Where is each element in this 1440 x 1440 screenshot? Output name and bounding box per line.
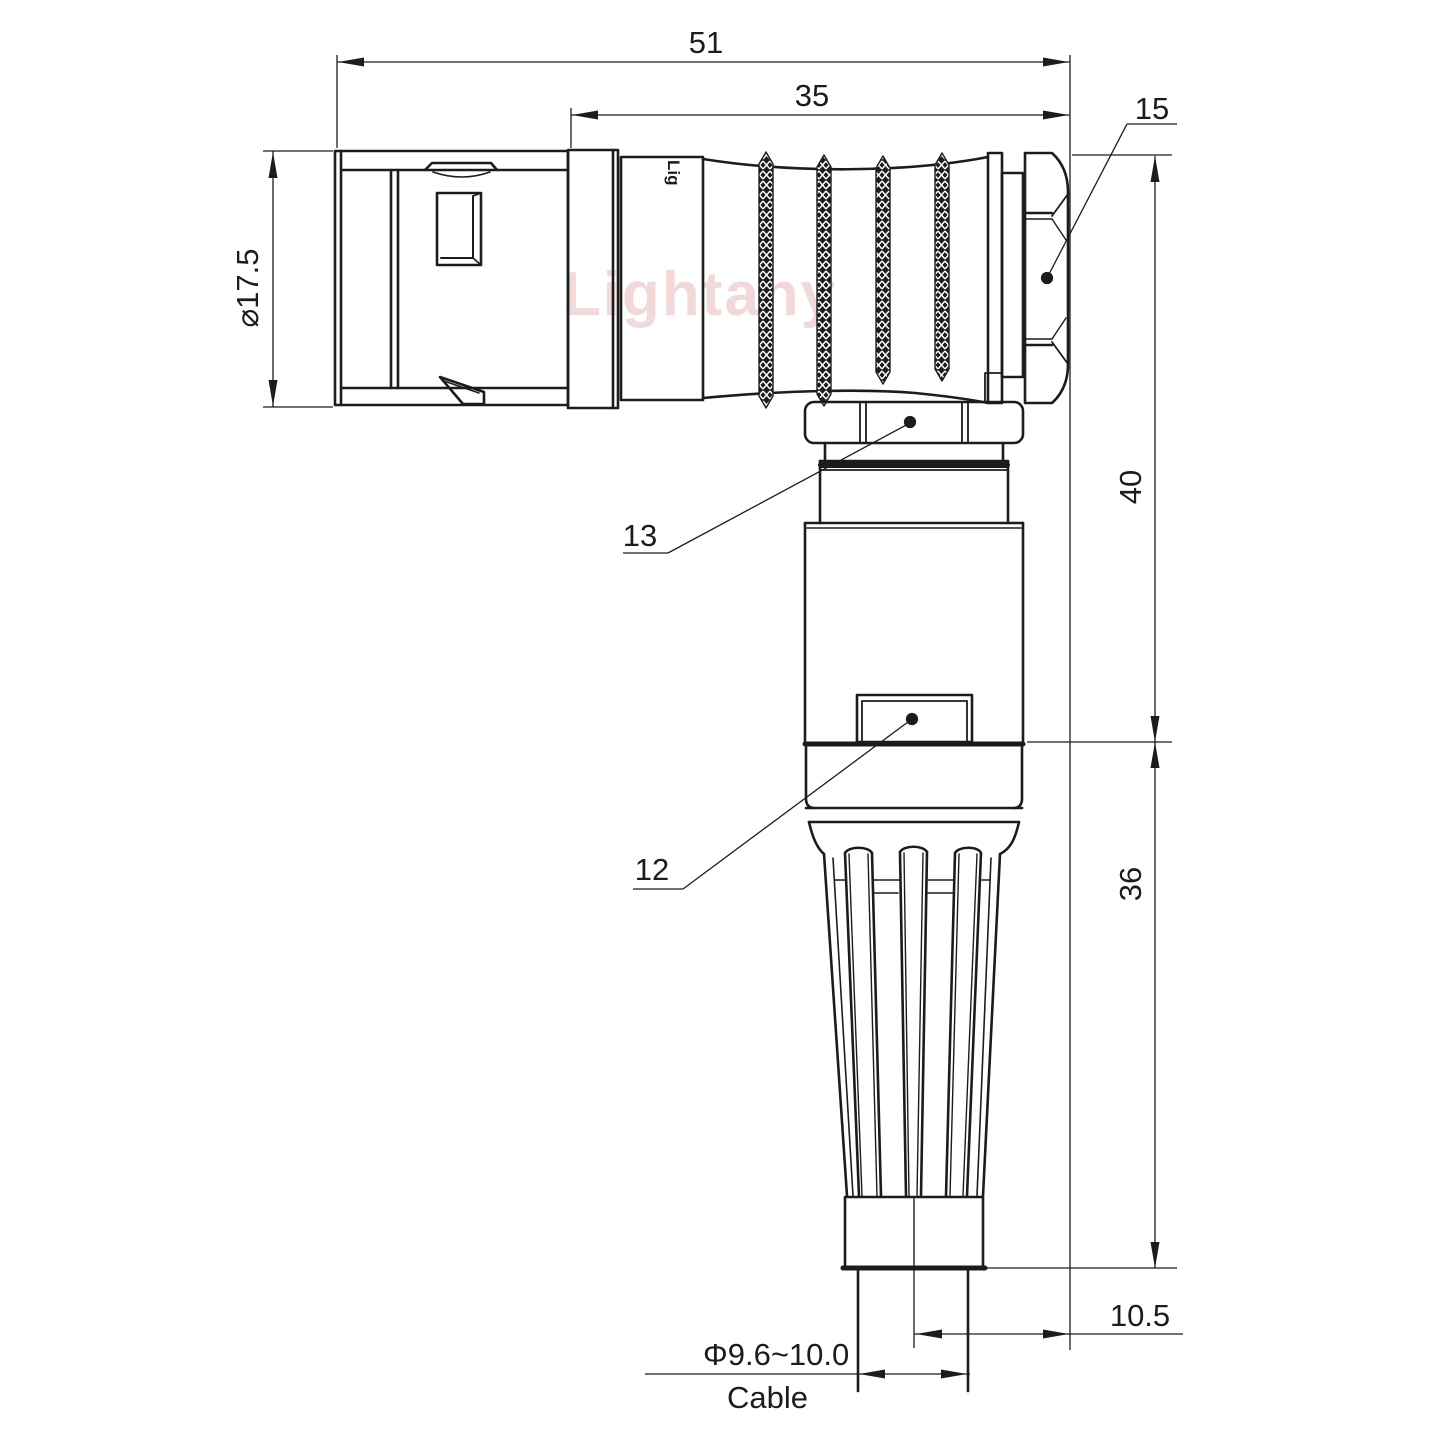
part-label-13: 13 [623, 518, 657, 553]
dim-text-15: 15 [1135, 91, 1169, 126]
dim-text-35: 35 [795, 78, 829, 113]
dim-text-10-5: 10.5 [1110, 1298, 1170, 1333]
dim-text-51: 51 [689, 25, 723, 60]
rear-collar [985, 153, 1023, 403]
connector-drawing: Lightany [0, 0, 1440, 1440]
strain-relief-boot [806, 747, 1022, 1196]
dim-text-40: 40 [1113, 470, 1148, 504]
label-cable: Cable [727, 1380, 808, 1415]
keying-window [437, 193, 481, 265]
dim-text-diameter: ⌀17.5 [230, 249, 265, 328]
leader-13 [623, 417, 916, 554]
neck-and-oring [820, 443, 1008, 523]
watermark-text: Lightany [563, 260, 837, 329]
latch-wedge [440, 377, 484, 404]
barrel-logo-marking: Lig [664, 160, 683, 186]
cable-ferrule [843, 1197, 985, 1268]
leader-12 [633, 714, 918, 890]
connector-body [805, 523, 1023, 744]
part-label-12: 12 [635, 852, 669, 887]
engineering-drawing-page: Lightany [0, 0, 1440, 1440]
front-shell [335, 151, 568, 405]
dim-text-36: 36 [1113, 867, 1148, 901]
dim-text-cable-diameter: Φ9.6~10.0 [703, 1337, 849, 1372]
